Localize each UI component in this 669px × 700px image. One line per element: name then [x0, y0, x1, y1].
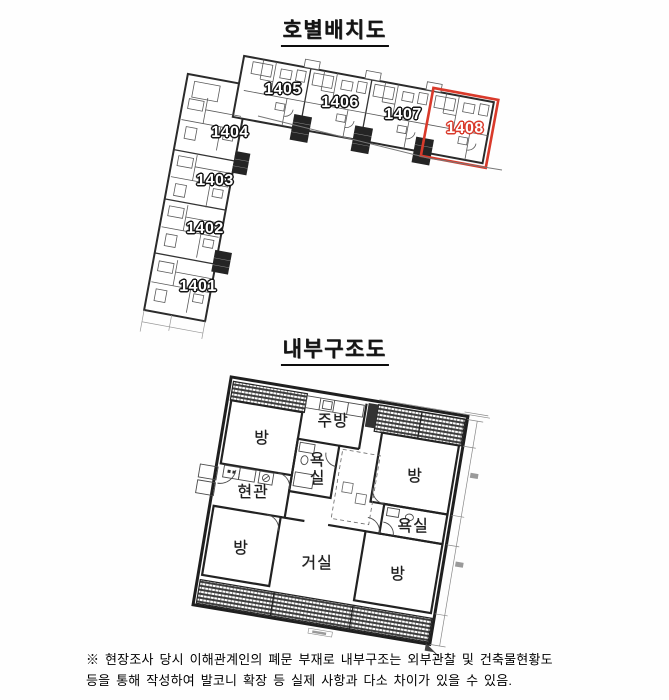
- room-label-bedroom-bottomleft: 방: [233, 534, 249, 558]
- room-label-bedroom-right: 방: [407, 462, 423, 486]
- room-label-living-room: 거실: [301, 549, 332, 573]
- footnote: ※ 현장조사 당시 이해관계인의 폐문 부재로 내부구조는 외부관찰 및 건축물…: [86, 650, 646, 691]
- room-label-bathroom-left: 욕실: [302, 451, 326, 487]
- floor-plan-drawing: [185, 358, 495, 658]
- unit-label-1404: 1404: [211, 124, 249, 142]
- unit-label-1402: 1402: [186, 220, 224, 238]
- appraisal-plan-page: 호별배치도: [0, 0, 669, 700]
- unit-layout-title: 호별배치도: [280, 14, 388, 47]
- unit-label-1405: 1405: [264, 81, 302, 99]
- internal-structure-plan: 방 주방 욕실 현관 방 거실 방 욕실 방: [185, 358, 495, 658]
- room-label-entrance: 현관: [237, 478, 268, 502]
- unit-layout-plan: 1401 1402 1403 1404 1405 1406 1407 1408: [130, 50, 540, 340]
- footnote-line-2: 등을 통해 작성하여 발코니 확장 등 실제 사항과 다소 차이가 있을 수 있…: [86, 671, 646, 692]
- unit-label-1403: 1403: [196, 172, 234, 190]
- unit-label-1406: 1406: [321, 94, 359, 112]
- unit-label-1401: 1401: [179, 278, 217, 296]
- room-label-bedroom-topleft: 방: [254, 424, 270, 448]
- unit-label-1408-highlighted: 1408: [446, 120, 484, 138]
- room-label-bathroom-right: 욕실: [397, 512, 428, 536]
- unit-label-1407: 1407: [384, 106, 422, 124]
- footnote-line-1: ※ 현장조사 당시 이해관계인의 폐문 부재로 내부구조는 외부관찰 및 건축물…: [86, 650, 646, 671]
- room-label-bedroom-bottomright: 방: [390, 560, 406, 584]
- room-label-kitchen: 주방: [317, 407, 348, 431]
